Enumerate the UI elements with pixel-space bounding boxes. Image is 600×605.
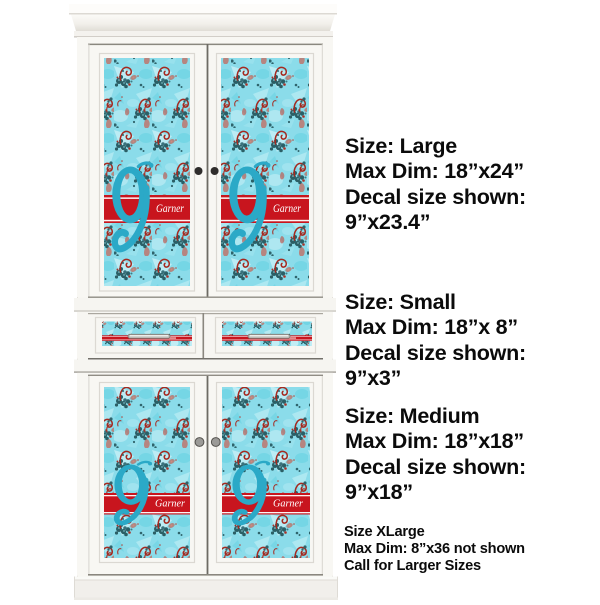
svg-text:Garner: Garner xyxy=(273,498,304,510)
svg-text:Garner: Garner xyxy=(156,203,184,215)
svg-text:Garner: Garner xyxy=(273,203,301,215)
svg-text:Garner: Garner xyxy=(155,498,186,510)
